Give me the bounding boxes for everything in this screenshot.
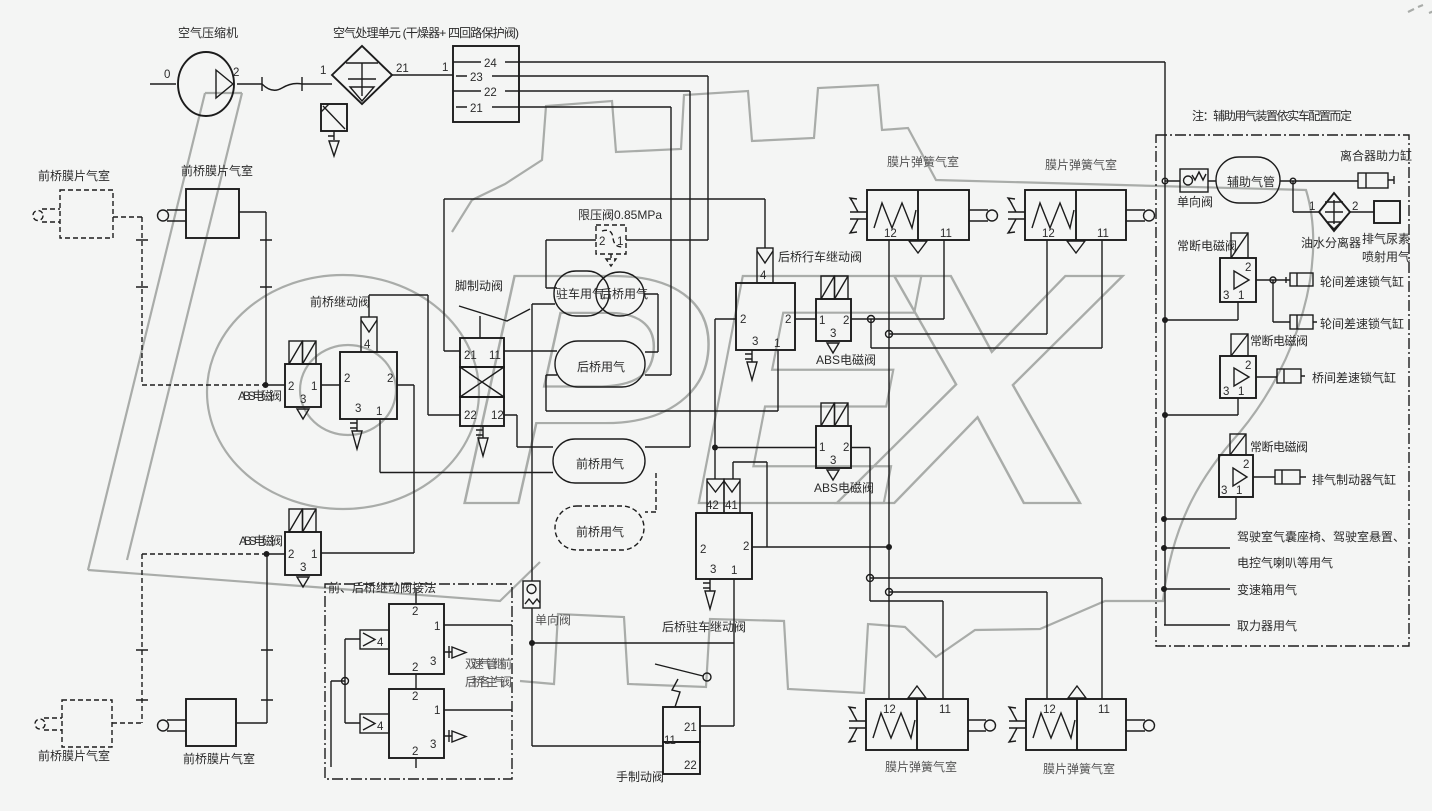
svg-text:12: 12 — [883, 704, 896, 716]
svg-text:前桥用气: 前桥用气 — [576, 524, 624, 539]
svg-text:22: 22 — [684, 760, 697, 772]
svg-text:3: 3 — [710, 564, 716, 576]
svg-text:1: 1 — [376, 406, 382, 418]
svg-text:4: 4 — [760, 270, 767, 282]
svg-text:1: 1 — [320, 65, 326, 77]
svg-text:2: 2 — [1243, 459, 1249, 471]
svg-text:1: 1 — [311, 381, 317, 393]
svg-text:桥间差速锁气缸: 桥间差速锁气缸 — [1312, 370, 1396, 385]
svg-text:2: 2 — [740, 314, 746, 326]
svg-text:驻车用气: 驻车用气 — [556, 286, 604, 301]
svg-text:22: 22 — [484, 87, 497, 99]
svg-text:ABS电磁阀: ABS电磁阀 — [814, 480, 874, 495]
svg-text:膜片弹簧气室: 膜片弹簧气室 — [887, 154, 959, 169]
svg-text:电控气喇叭等用气: 电控气喇叭等用气 — [1237, 555, 1333, 570]
svg-text:膜片弹簧气室: 膜片弹簧气室 — [885, 759, 957, 774]
svg-text:常断电磁阀: 常断电磁阀 — [1250, 439, 1308, 454]
svg-text:后桥各主气阀: 后桥各主气阀 — [465, 674, 512, 689]
svg-text:1: 1 — [774, 338, 780, 350]
svg-text:排气尿素: 排气尿素 — [1362, 231, 1410, 246]
svg-text:1: 1 — [434, 705, 440, 717]
svg-text:1: 1 — [311, 549, 317, 561]
svg-text:0: 0 — [164, 69, 170, 81]
svg-text:2: 2 — [412, 662, 418, 674]
svg-text:单向阀: 单向阀 — [1177, 194, 1213, 209]
svg-text:轮间差速锁气缸: 轮间差速锁气缸 — [1320, 316, 1404, 331]
svg-text:42: 42 — [706, 500, 719, 512]
svg-text:前桥膜片气室: 前桥膜片气室 — [38, 168, 110, 183]
svg-text:4: 4 — [364, 339, 371, 351]
svg-text:12: 12 — [884, 228, 897, 240]
svg-text:X: X — [836, 204, 1123, 573]
svg-text:2: 2 — [743, 541, 749, 553]
svg-text:常断电磁阀: 常断电磁阀 — [1177, 238, 1237, 253]
svg-text:前桥膜片气室: 前桥膜片气室 — [181, 163, 253, 178]
svg-text:前桥用气: 前桥用气 — [576, 456, 624, 471]
svg-text:2: 2 — [785, 314, 791, 326]
svg-text:11: 11 — [940, 228, 952, 240]
svg-text:2: 2 — [412, 746, 418, 758]
svg-text:前桥继动阀: 前桥继动阀 — [310, 294, 370, 309]
svg-text:空气处理单元 (干燥器+ 四回路保护阀): 空气处理单元 (干燥器+ 四回路保护阀) — [333, 25, 519, 40]
svg-text:前桥膜片气室: 前桥膜片气室 — [38, 748, 110, 763]
svg-text:11: 11 — [1097, 228, 1109, 240]
svg-text:3: 3 — [752, 336, 758, 348]
svg-text:2: 2 — [599, 236, 605, 248]
svg-text:41: 41 — [725, 500, 738, 512]
svg-text:4: 4 — [377, 721, 384, 733]
svg-text:3: 3 — [1221, 485, 1227, 497]
svg-text:11: 11 — [939, 704, 951, 716]
svg-text:2: 2 — [344, 373, 350, 385]
svg-text:3: 3 — [1223, 290, 1229, 302]
svg-text:11: 11 — [664, 735, 676, 747]
svg-text:2: 2 — [412, 691, 418, 703]
svg-text:ABS电磁阀: ABS电磁阀 — [816, 352, 876, 367]
svg-text:单向阀: 单向阀 — [535, 612, 571, 627]
svg-text:3: 3 — [1223, 386, 1229, 398]
svg-text:ABS电磁阀: ABS电磁阀 — [238, 388, 282, 403]
svg-text:21: 21 — [396, 63, 409, 75]
svg-text:ABS电磁阀: ABS电磁阀 — [239, 533, 283, 548]
svg-text:注：辅助用气装置依实车配置而定: 注：辅助用气装置依实车配置而定 — [1192, 108, 1352, 123]
svg-text:轮间差速锁气缸: 轮间差速锁气缸 — [1320, 274, 1404, 289]
svg-text:1: 1 — [1236, 485, 1242, 497]
svg-text:2: 2 — [233, 67, 239, 79]
svg-text:变速箱用气: 变速箱用气 — [1237, 582, 1297, 597]
svg-text:油水分离器: 油水分离器 — [1301, 235, 1361, 250]
svg-text:3: 3 — [430, 656, 436, 668]
svg-text:取力器用气: 取力器用气 — [1237, 618, 1297, 633]
svg-text:1: 1 — [819, 315, 825, 327]
svg-text:1: 1 — [1309, 201, 1315, 213]
svg-text:2: 2 — [843, 442, 849, 454]
svg-text:3: 3 — [830, 328, 836, 340]
svg-text:空气压缩机: 空气压缩机 — [178, 25, 238, 40]
svg-text:膜片弹簧气室: 膜片弹簧气室 — [1043, 761, 1115, 776]
svg-text:1: 1 — [819, 442, 825, 454]
svg-text:后桥用气: 后桥用气 — [577, 359, 625, 374]
svg-text:23: 23 — [470, 72, 483, 84]
svg-text:1: 1 — [1238, 386, 1244, 398]
svg-text:2: 2 — [1245, 262, 1251, 274]
svg-text:3: 3 — [300, 562, 306, 574]
svg-text:3: 3 — [430, 739, 436, 751]
svg-text:12: 12 — [1042, 228, 1055, 240]
svg-text:双速气管继前: 双速气管继前 — [465, 656, 512, 671]
svg-text:脚制动阀: 脚制动阀 — [455, 278, 503, 293]
svg-text:2: 2 — [843, 315, 849, 327]
svg-text:11: 11 — [1098, 704, 1110, 716]
svg-text:22: 22 — [464, 410, 477, 422]
svg-text:离合器助力缸: 离合器助力缸 — [1340, 148, 1412, 163]
svg-text:前、后桥继动阀接法: 前、后桥继动阀接法 — [328, 580, 436, 595]
svg-text:喷射用气: 喷射用气 — [1362, 249, 1410, 264]
svg-text:前桥膜片气室: 前桥膜片气室 — [183, 751, 255, 766]
svg-text:24: 24 — [484, 58, 497, 70]
svg-text:2: 2 — [387, 373, 393, 385]
svg-text:P: P — [458, 204, 710, 573]
svg-text:1: 1 — [434, 621, 440, 633]
svg-text:2: 2 — [288, 381, 294, 393]
svg-text:2: 2 — [412, 606, 418, 618]
svg-text:2: 2 — [700, 544, 706, 556]
svg-text:21: 21 — [470, 103, 483, 115]
svg-text:辅助气管: 辅助气管 — [1227, 174, 1275, 189]
svg-text:排气制动器气缸: 排气制动器气缸 — [1312, 472, 1396, 487]
svg-text:手制动阀: 手制动阀 — [616, 770, 664, 784]
svg-text:3: 3 — [300, 394, 306, 406]
svg-text:12: 12 — [1043, 704, 1056, 716]
svg-text:3: 3 — [355, 403, 361, 415]
svg-text:4: 4 — [377, 637, 384, 649]
svg-text:1: 1 — [442, 62, 448, 74]
svg-text:2: 2 — [1245, 360, 1251, 372]
svg-text:12: 12 — [491, 410, 504, 422]
svg-text:1: 1 — [1238, 290, 1244, 302]
svg-text:1: 1 — [731, 565, 737, 577]
svg-text:21: 21 — [464, 350, 477, 362]
svg-text:后桥用气: 后桥用气 — [600, 286, 648, 301]
svg-text:常断电磁阀: 常断电磁阀 — [1250, 333, 1308, 348]
svg-text:后桥行车继动阀: 后桥行车继动阀 — [778, 249, 862, 264]
svg-text:21: 21 — [684, 722, 697, 734]
svg-text:驾驶室气囊座椅、驾驶室悬置、: 驾驶室气囊座椅、驾驶室悬置、 — [1237, 529, 1405, 544]
svg-text:3: 3 — [830, 455, 836, 467]
svg-text:膜片弹簧气室: 膜片弹簧气室 — [1045, 157, 1117, 172]
svg-text:2: 2 — [1352, 201, 1358, 213]
svg-text:2: 2 — [288, 549, 294, 561]
svg-text:限压阀0.85MPa: 限压阀0.85MPa — [578, 208, 662, 222]
svg-text:11: 11 — [489, 350, 501, 362]
